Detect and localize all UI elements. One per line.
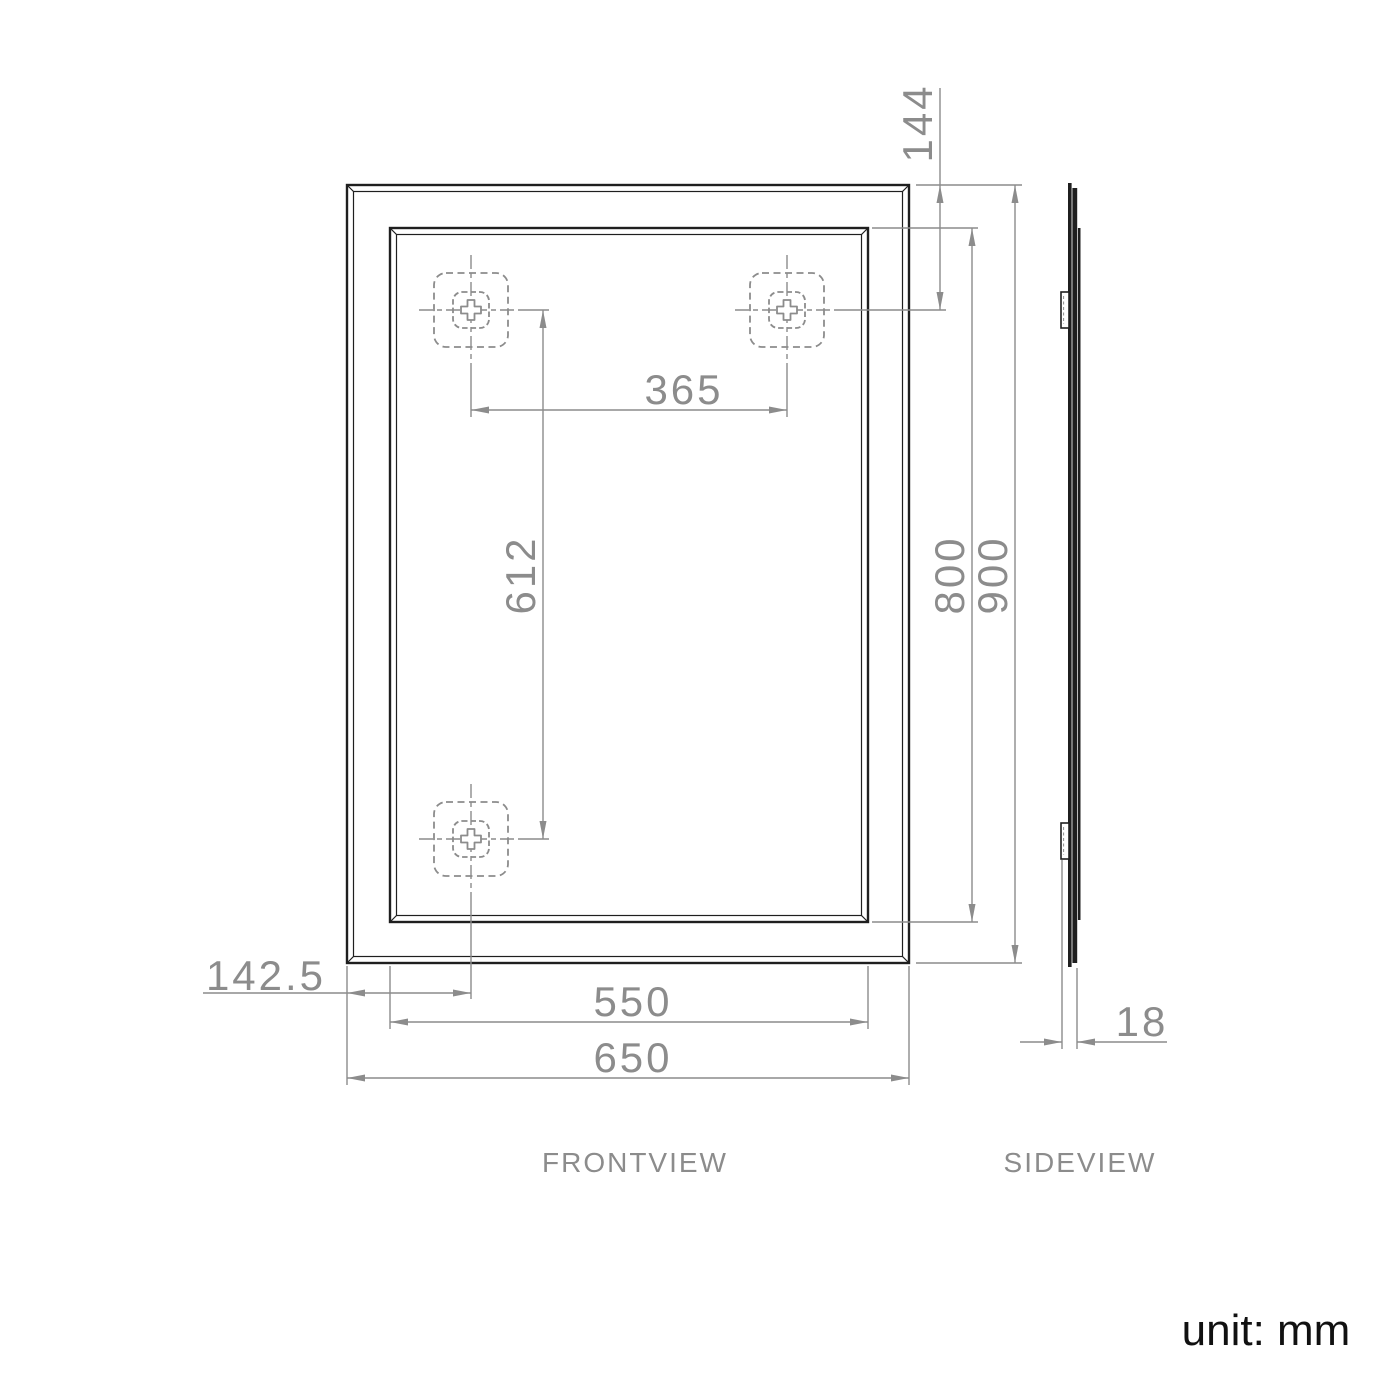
dimension-overall-height: 900 (969, 185, 1018, 963)
drawing-sheet: 144 365 612 800 900 (0, 0, 1400, 1400)
mounting-bracket-top-left (419, 255, 523, 365)
screw-cross-icon (461, 829, 481, 849)
dimension-inner-width: 550 (390, 978, 868, 1026)
dimension-top-hole-spacing: 365 (471, 366, 787, 414)
side-profile-back-panel (1078, 228, 1081, 920)
technical-drawing: 144 365 612 800 900 (0, 0, 1400, 1400)
dim-612-label: 612 (497, 535, 544, 614)
dimension-bottom-hole-left-offset: 142.5 (203, 952, 471, 999)
side-view (1061, 183, 1081, 967)
dim-18-label: 18 (1116, 998, 1169, 1045)
dim-550-label: 550 (593, 978, 672, 1025)
dimension-vertical-hole-spacing: 612 (497, 310, 546, 839)
dimension-depth: 18 (1020, 998, 1168, 1046)
screw-cross-icon (461, 300, 481, 320)
extension-lines (347, 185, 1077, 1085)
frame-inner-bevel (397, 235, 862, 916)
dim-144-label: 144 (894, 83, 941, 162)
unit-note: unit: mm (1182, 1306, 1351, 1355)
mounting-bracket-top-right (735, 255, 839, 365)
frame-inner-edge (390, 228, 868, 922)
dim-800-label: 800 (926, 535, 973, 614)
side-profile-body (1072, 188, 1077, 963)
dimension-inner-height: 800 (926, 228, 975, 922)
dim-365-label: 365 (644, 366, 723, 413)
front-view-label: FRONTVIEW (542, 1147, 728, 1178)
dim-142.5-label: 142.5 (206, 952, 326, 999)
dimension-top-hole-offset: 144 (894, 83, 943, 310)
side-view-label: SIDEVIEW (1004, 1147, 1157, 1178)
dim-650-label: 650 (593, 1034, 672, 1081)
mounting-bracket-bottom-left (419, 784, 523, 894)
side-bracket-bottom (1061, 823, 1069, 859)
dimension-overall-width: 650 (347, 1034, 909, 1082)
dim-900-label: 900 (969, 535, 1016, 614)
frame-outer-bevel (354, 192, 903, 957)
side-bracket-top (1061, 292, 1069, 328)
screw-cross-icon (777, 300, 797, 320)
